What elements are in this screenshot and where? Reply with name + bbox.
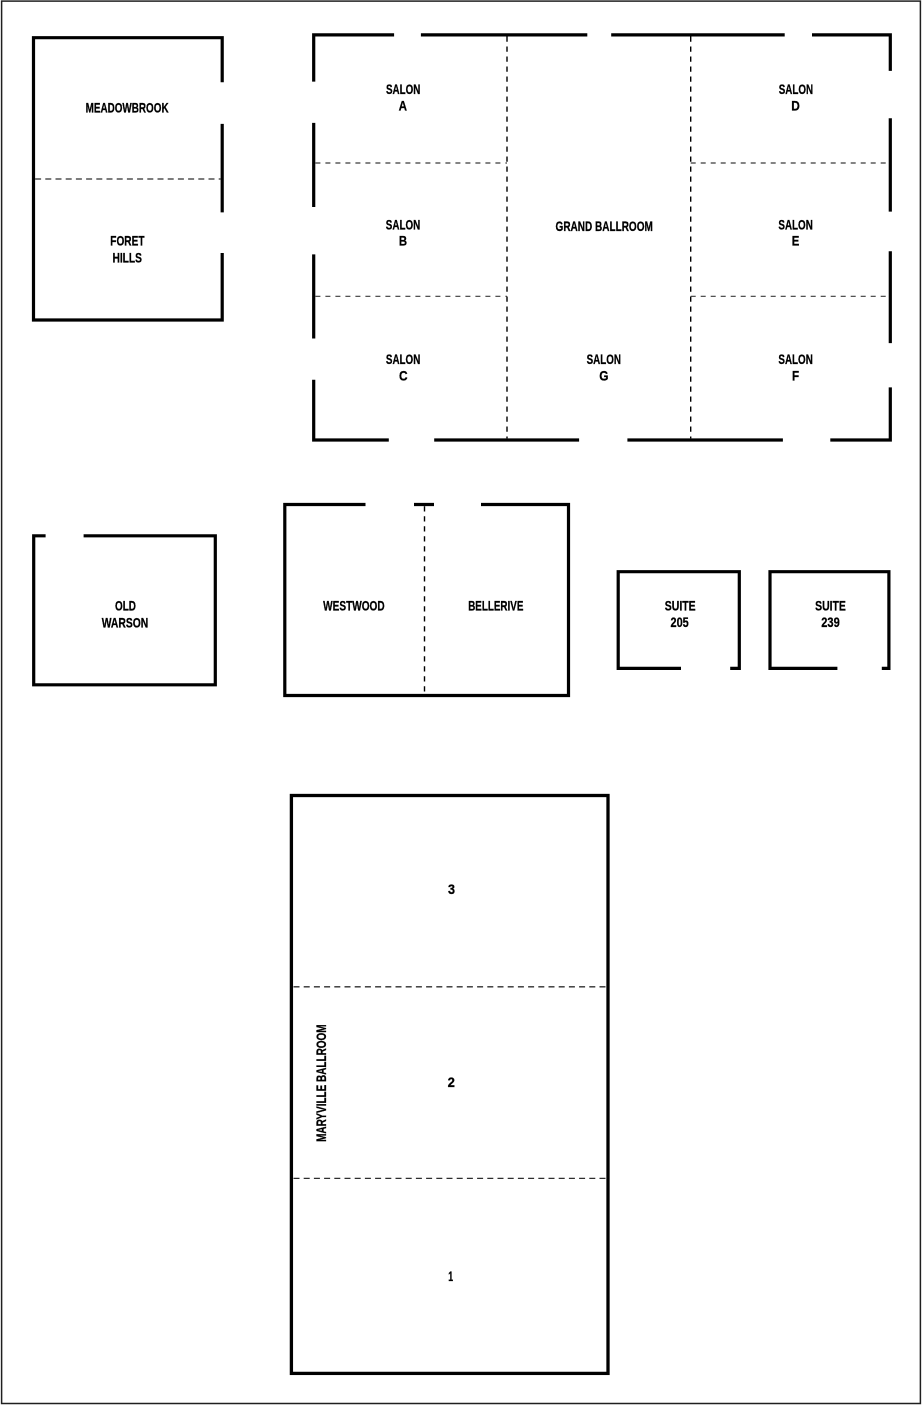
svg-text:SUITE: SUITE bbox=[665, 598, 696, 614]
svg-text:OLD: OLD bbox=[115, 598, 136, 614]
svg-text:G: G bbox=[599, 367, 608, 383]
svg-text:FORET: FORET bbox=[110, 233, 145, 249]
svg-text:SALON: SALON bbox=[386, 81, 420, 97]
svg-text:A: A bbox=[399, 97, 407, 113]
svg-text:WESTWOOD: WESTWOOD bbox=[323, 598, 385, 614]
svg-text:3: 3 bbox=[448, 881, 455, 897]
svg-text:F: F bbox=[792, 367, 799, 383]
svg-text:SALON: SALON bbox=[778, 216, 812, 232]
svg-text:SALON: SALON bbox=[587, 351, 621, 367]
svg-text:C: C bbox=[399, 367, 408, 383]
svg-text:SUITE: SUITE bbox=[815, 598, 846, 614]
svg-text:WARSON: WARSON bbox=[102, 615, 149, 631]
svg-text:239: 239 bbox=[821, 614, 840, 630]
svg-text:2: 2 bbox=[448, 1074, 455, 1090]
svg-text:GRAND BALLROOM: GRAND BALLROOM bbox=[556, 218, 653, 234]
svg-text:BELLERIVE: BELLERIVE bbox=[468, 598, 523, 614]
svg-text:SALON: SALON bbox=[386, 216, 420, 232]
svg-text:SALON: SALON bbox=[778, 351, 812, 367]
svg-text:205: 205 bbox=[671, 614, 689, 630]
svg-text:D: D bbox=[791, 97, 800, 113]
svg-text:E: E bbox=[792, 233, 800, 249]
svg-text:MEADOWBROOK: MEADOWBROOK bbox=[86, 100, 169, 116]
svg-text:SALON: SALON bbox=[386, 351, 420, 367]
svg-text:SALON: SALON bbox=[779, 81, 813, 97]
svg-text:1: 1 bbox=[448, 1268, 453, 1284]
svg-text:B: B bbox=[399, 233, 407, 249]
svg-text:MARYVILLE BALLROOM: MARYVILLE BALLROOM bbox=[313, 1024, 329, 1142]
svg-text:HILLS: HILLS bbox=[112, 249, 142, 265]
